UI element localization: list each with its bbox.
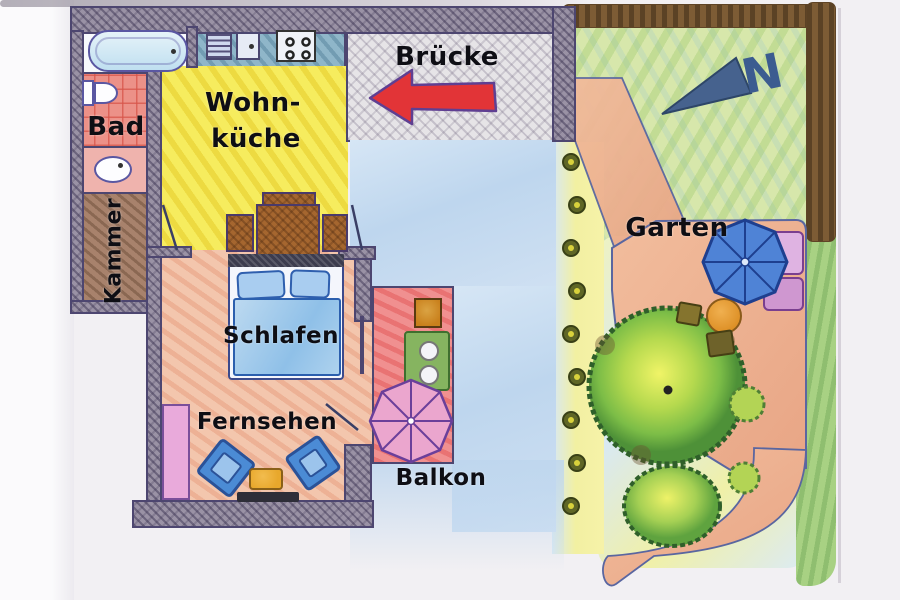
- living-kitchen-label: Wohn-: [205, 88, 301, 118]
- overlay-drawing-layer: [0, 0, 900, 600]
- floor-plan-canvas: N: [0, 0, 900, 600]
- flower-icon: [563, 154, 585, 514]
- parasol-icon: [370, 380, 452, 462]
- entry-arrow-icon: [370, 70, 496, 124]
- bridge-label: Brücke: [395, 42, 499, 72]
- tv-label: Fernsehen: [197, 409, 337, 435]
- door-swing-line: [163, 205, 177, 250]
- sleeping-label: Schlafen: [223, 323, 339, 349]
- door-swing-line: [352, 205, 362, 250]
- living-kitchen-label: küche: [211, 124, 301, 154]
- bathroom-label: Bad: [87, 112, 144, 142]
- storage-room-label: Kammer: [102, 198, 127, 305]
- garden-label: Garten: [625, 213, 728, 243]
- balcony-label: Balkon: [396, 465, 487, 491]
